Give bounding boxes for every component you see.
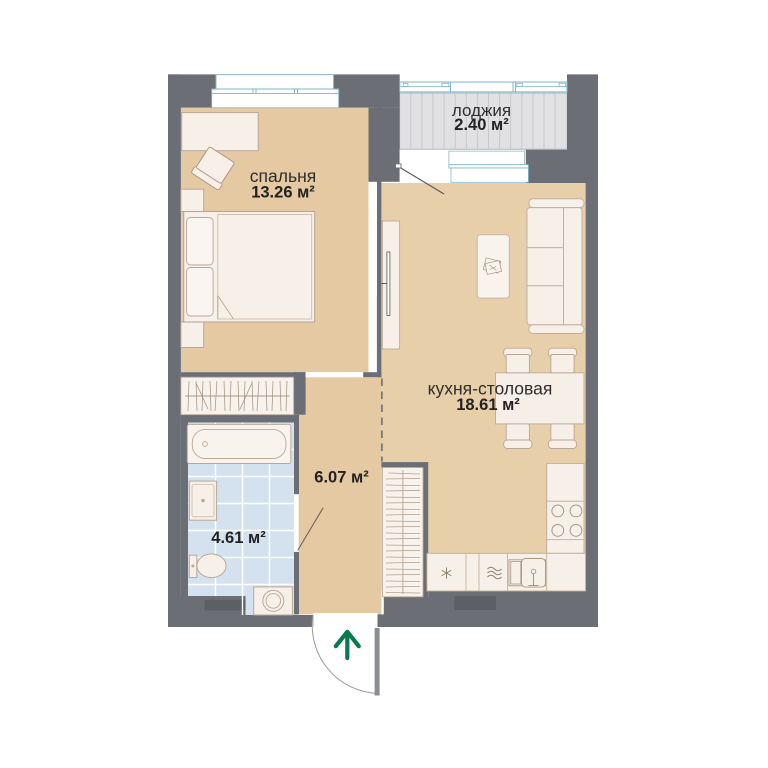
svg-text:6.07 м²: 6.07 м² xyxy=(314,469,369,487)
svg-text:13.26 м²: 13.26 м² xyxy=(251,184,315,202)
svg-text:2.40 м²: 2.40 м² xyxy=(454,116,509,134)
svg-text:18.61 м²: 18.61 м² xyxy=(456,396,520,414)
svg-text:4.61 м²: 4.61 м² xyxy=(211,529,266,547)
